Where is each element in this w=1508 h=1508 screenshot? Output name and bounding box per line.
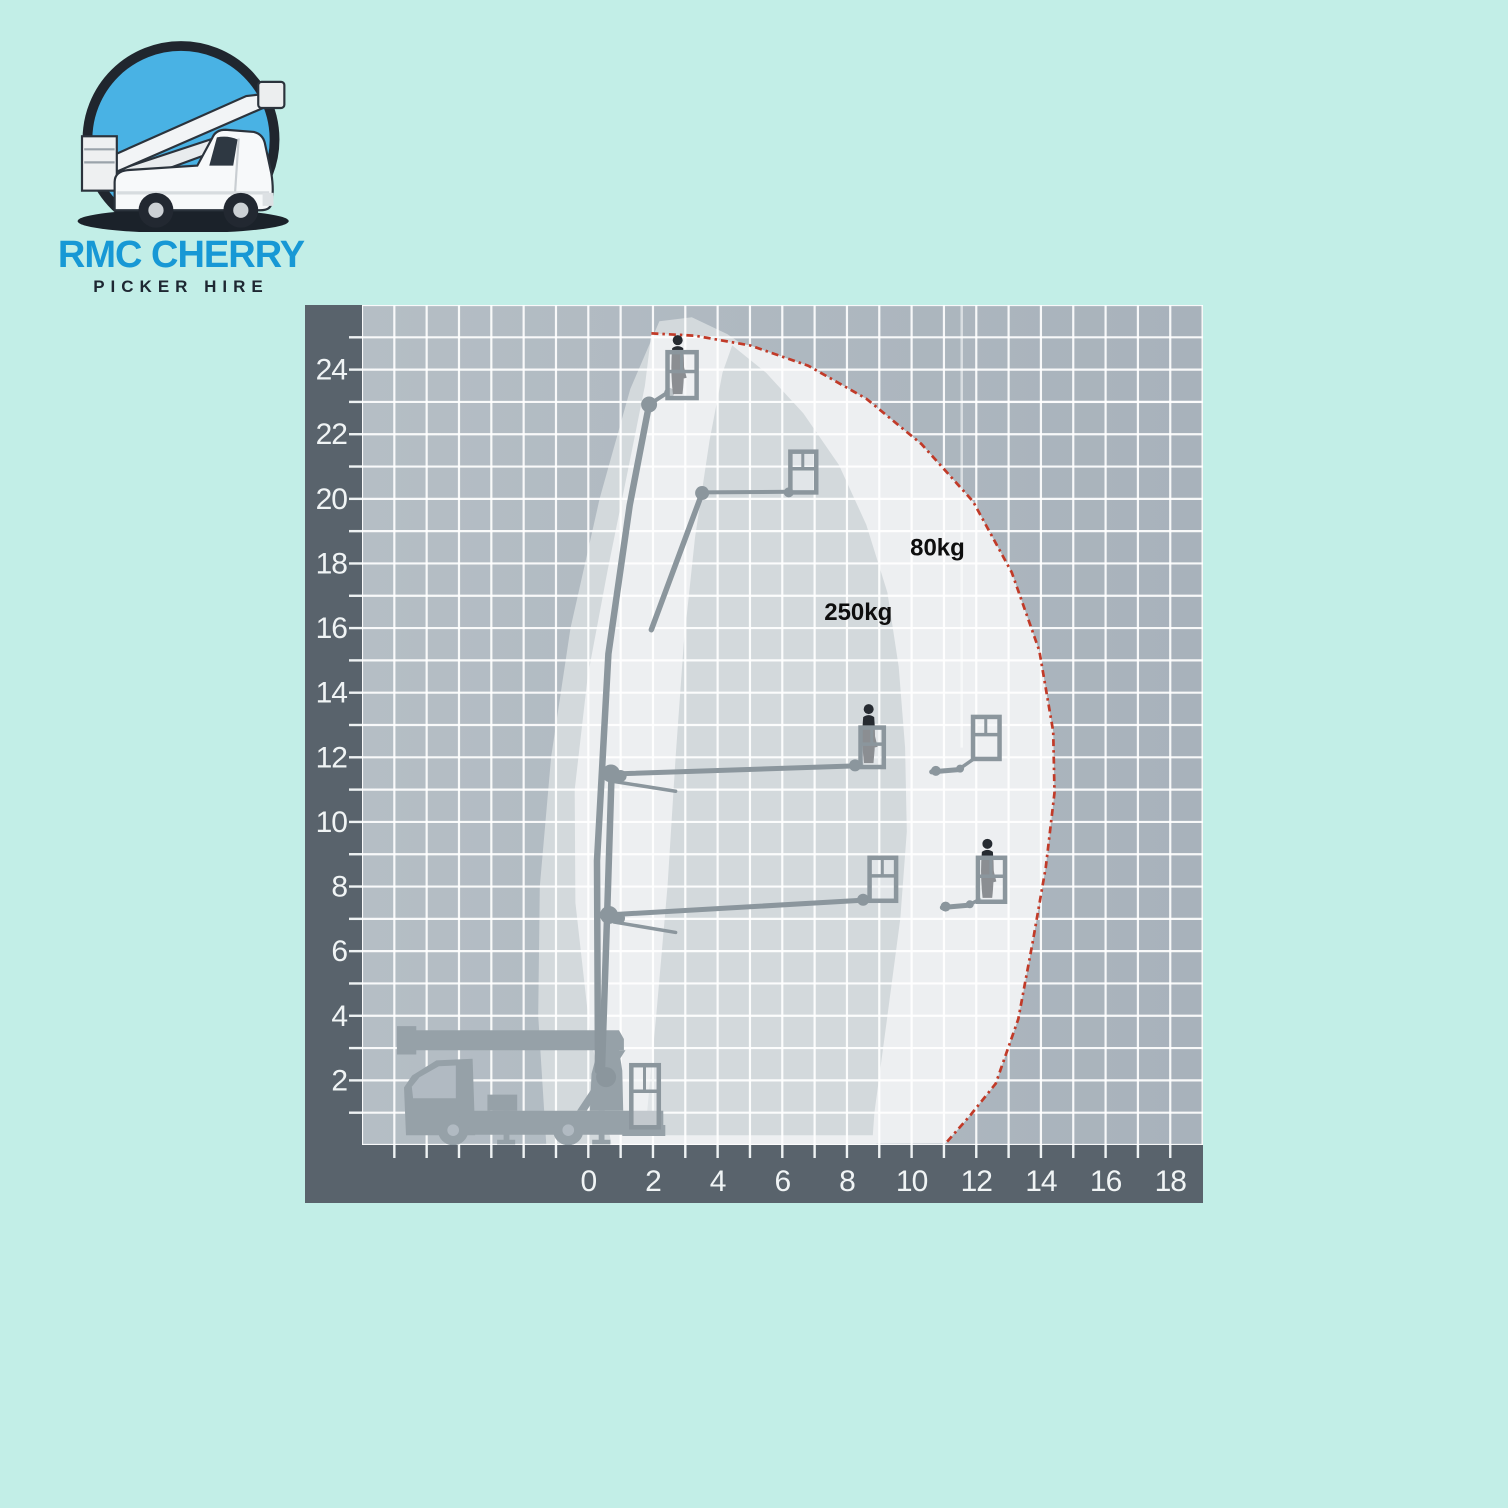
y-tick-label: 24 bbox=[316, 354, 348, 387]
basket bbox=[973, 717, 1000, 759]
boom-knuckle bbox=[941, 902, 951, 912]
boom-knuckle bbox=[613, 912, 625, 924]
y-tick-label: 8 bbox=[331, 871, 347, 904]
x-tick-label: 4 bbox=[710, 1165, 726, 1198]
boom-knuckle bbox=[956, 765, 964, 773]
reach-diagram-svg: 80kg250kg2468101214161820222402468101214… bbox=[305, 305, 1203, 1203]
y-tick-label: 12 bbox=[316, 741, 348, 774]
y-tick-label: 18 bbox=[316, 547, 348, 580]
y-tick-label: 6 bbox=[331, 935, 347, 968]
boom-knuckle bbox=[857, 894, 869, 906]
basket bbox=[870, 858, 897, 901]
boom-segment bbox=[702, 492, 791, 493]
basket bbox=[631, 1065, 658, 1127]
x-tick-label: 8 bbox=[839, 1165, 855, 1198]
reach-diagram: 80kg250kg2468101214161820222402468101214… bbox=[305, 305, 1203, 1203]
boom-knuckle bbox=[695, 486, 709, 500]
boom-knuckle bbox=[641, 397, 657, 413]
boom-knuckle bbox=[931, 766, 941, 776]
y-tick-label: 14 bbox=[316, 677, 348, 710]
weight-label: 80kg bbox=[910, 534, 965, 561]
x-tick-label: 18 bbox=[1155, 1165, 1187, 1198]
page: { "page": { "background": "#c2eee7" }, "… bbox=[0, 0, 1508, 1508]
brand-logo: RMC CHERRY PICKER HIRE bbox=[40, 34, 322, 297]
x-tick-label: 12 bbox=[961, 1165, 993, 1198]
boom-knuckle bbox=[966, 900, 974, 908]
logo-truck-graphic bbox=[45, 34, 317, 232]
y-tick-label: 2 bbox=[331, 1064, 347, 1097]
y-tick-label: 10 bbox=[316, 806, 348, 839]
boom-knuckle bbox=[596, 1067, 616, 1087]
x-tick-label: 10 bbox=[896, 1165, 928, 1198]
y-tick-label: 20 bbox=[316, 483, 348, 516]
y-tick-label: 4 bbox=[331, 1000, 347, 1033]
weight-label: 250kg bbox=[824, 599, 892, 626]
logo-subtitle: PICKER HIRE bbox=[40, 277, 322, 297]
basket bbox=[790, 452, 816, 493]
x-tick-label: 14 bbox=[1025, 1165, 1057, 1198]
x-tick-label: 16 bbox=[1090, 1165, 1122, 1198]
x-tick-label: 6 bbox=[774, 1165, 790, 1198]
y-tick-label: 22 bbox=[316, 418, 348, 451]
x-axis: 024681012141618 bbox=[305, 1145, 1203, 1203]
y-tick-label: 16 bbox=[316, 612, 348, 645]
logo-title: RMC CHERRY bbox=[40, 236, 322, 274]
x-tick-label: 0 bbox=[580, 1165, 596, 1198]
boom-knuckle bbox=[615, 770, 627, 782]
x-tick-label: 2 bbox=[645, 1165, 661, 1198]
y-axis: 24681012141618202224 bbox=[305, 305, 362, 1203]
